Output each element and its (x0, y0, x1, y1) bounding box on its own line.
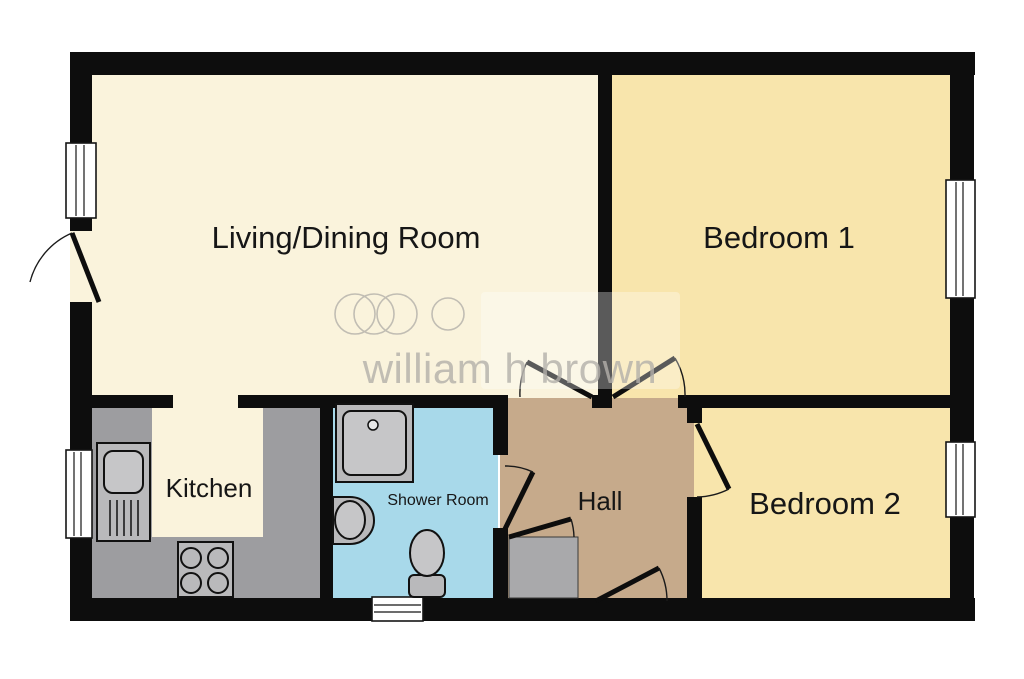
toilet (409, 530, 445, 597)
storage-cupboard (509, 537, 578, 598)
wall-bedroom-divider (678, 395, 950, 408)
wall-shower-hall-lower (493, 528, 508, 598)
wall-hall-bedroom2-upper (687, 395, 702, 423)
kitchen-sink (97, 443, 150, 541)
label-living-dining-room: Living/Dining Room (212, 220, 481, 255)
wall-hall-bedroom2-lower (687, 497, 702, 598)
hob (178, 542, 233, 597)
label-bedroom-1: Bedroom 1 (703, 220, 855, 255)
wall-outer-right (950, 52, 974, 621)
bedroom-1-window (946, 180, 975, 298)
wall-outer-top (70, 52, 975, 75)
wall-shower-hall-upper (493, 395, 508, 455)
watermark-text: william h brown (362, 345, 658, 392)
floor-plan-drawing: william h brown Living/Dining Room Bedro… (0, 0, 1024, 679)
wall-kitchen-top-left (92, 395, 173, 408)
shower-drain (368, 420, 378, 430)
shower-tray (336, 404, 413, 482)
wash-basin (333, 497, 374, 544)
label-kitchen: Kitchen (166, 473, 253, 503)
bedroom-2-window (946, 442, 975, 517)
living-room-window (66, 143, 96, 218)
kitchen-window (66, 450, 92, 538)
wall-outer-bottom (70, 598, 975, 621)
shower-room-window (372, 597, 423, 621)
label-bedroom-2: Bedroom 2 (749, 486, 901, 521)
wall-kitchen-shower (320, 395, 333, 598)
floor-plan-page: william h brown Living/Dining Room Bedro… (0, 0, 1024, 679)
label-shower-room: Shower Room (387, 492, 488, 509)
label-hall: Hall (578, 486, 623, 516)
